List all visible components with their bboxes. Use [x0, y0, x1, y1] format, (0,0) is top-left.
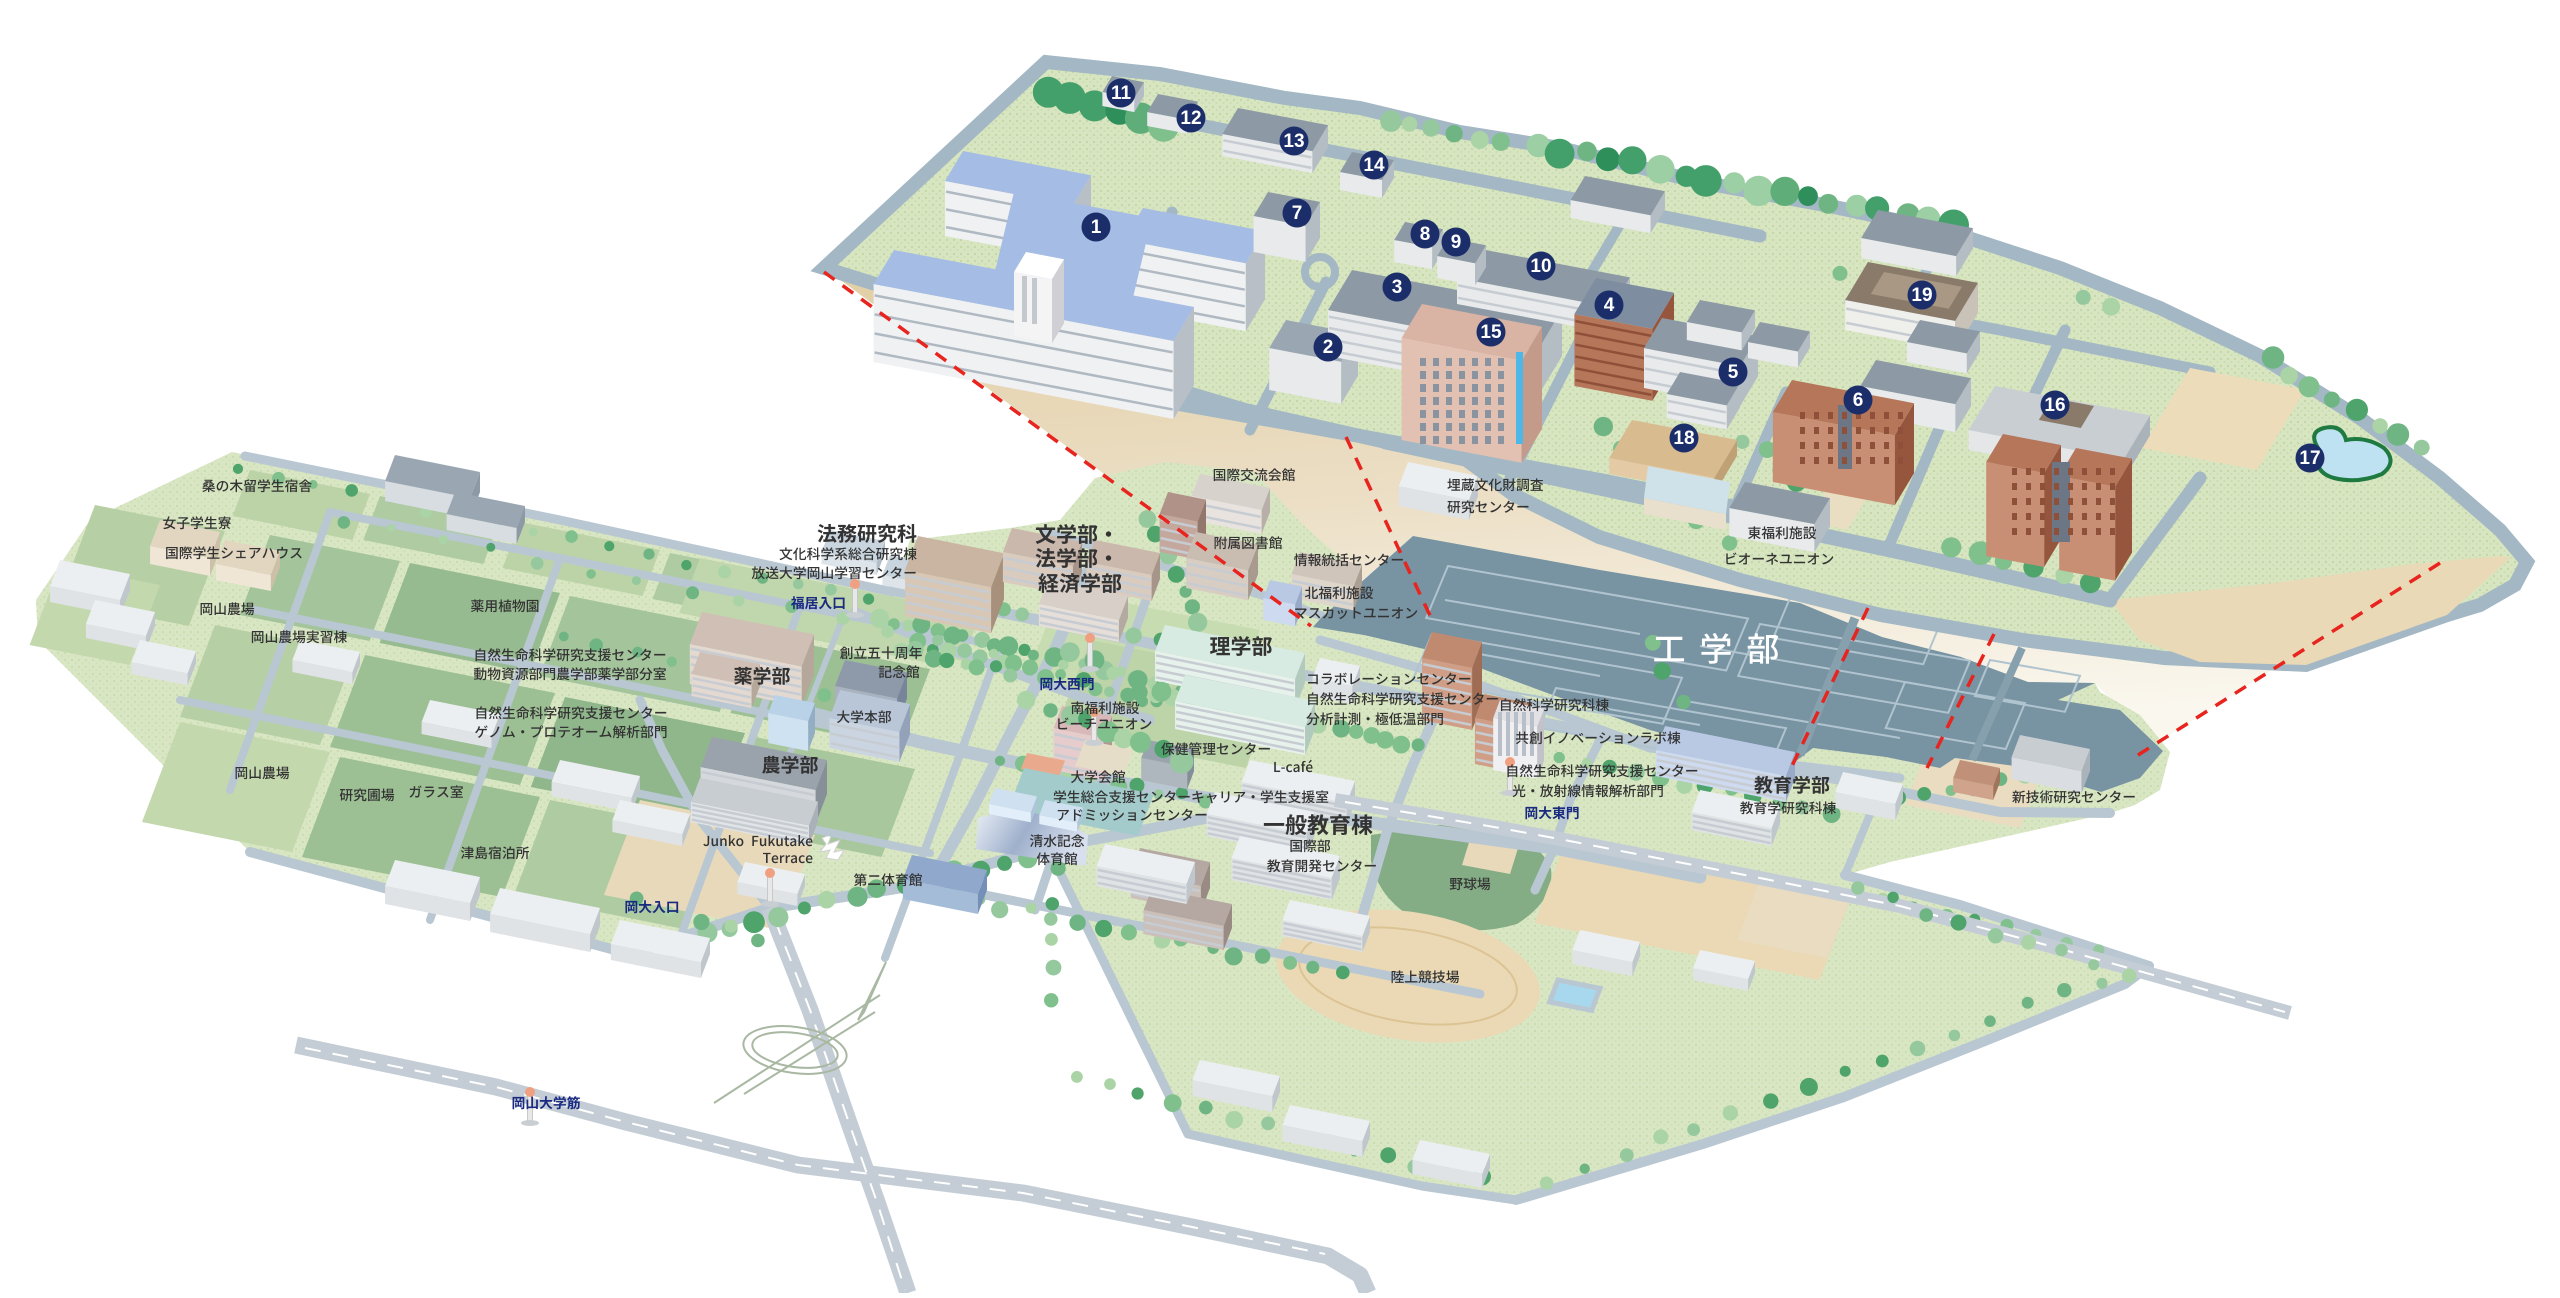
- svg-text:4: 4: [1604, 295, 1615, 316]
- svg-text:5: 5: [1728, 362, 1739, 383]
- svg-text:17: 17: [2299, 448, 2320, 469]
- svg-text:13: 13: [1283, 131, 1304, 152]
- svg-text:6: 6: [1853, 390, 1864, 411]
- svg-text:12: 12: [1180, 108, 1201, 129]
- svg-text:8: 8: [1420, 224, 1431, 245]
- svg-text:9: 9: [1451, 232, 1462, 253]
- svg-text:19: 19: [1911, 285, 1932, 306]
- svg-text:7: 7: [1292, 203, 1303, 224]
- svg-text:11: 11: [1111, 83, 1132, 104]
- svg-text:10: 10: [1530, 256, 1551, 277]
- svg-text:1: 1: [1091, 217, 1102, 238]
- svg-text:18: 18: [1673, 428, 1694, 449]
- svg-text:2: 2: [1323, 337, 1334, 358]
- svg-text:14: 14: [1363, 155, 1385, 176]
- svg-text:15: 15: [1480, 322, 1502, 343]
- svg-text:16: 16: [2044, 395, 2065, 416]
- svg-text:3: 3: [1392, 277, 1403, 298]
